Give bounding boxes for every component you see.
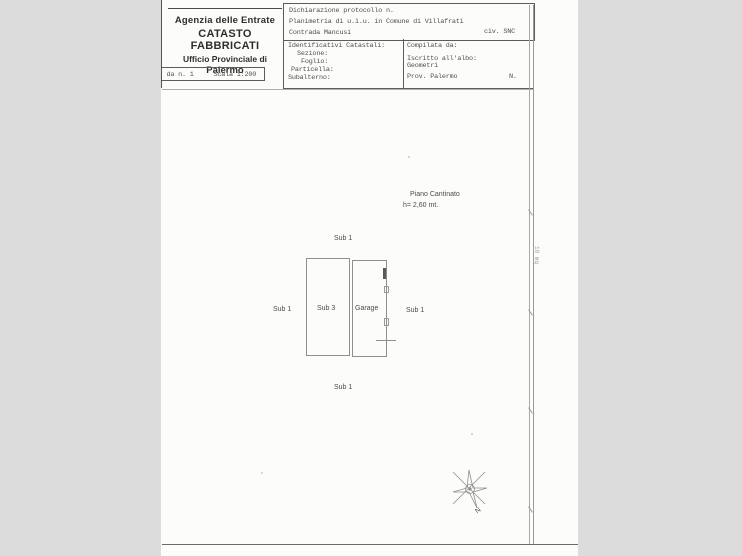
threshold-line bbox=[376, 340, 396, 341]
declaration-planimetry: Planimetria di u.i.u. in Comune di Villa… bbox=[289, 18, 464, 26]
agency-office-line: Ufficio Provinciale di bbox=[168, 54, 282, 64]
compass-rose-icon: N bbox=[449, 468, 493, 518]
compiler-register2: Geometri bbox=[407, 62, 438, 70]
page-bottom-rule bbox=[162, 544, 578, 545]
compiler-box: Compilata da: Iscritto all'albo: Geometr… bbox=[402, 39, 534, 89]
declaration-address: Contrada Mancusi bbox=[289, 29, 351, 37]
declaration-protocol: Dichiarazione protocollo n. bbox=[289, 7, 394, 15]
scan-speck bbox=[261, 472, 263, 474]
agency-header: Agenzia delle Entrate CATASTO FABBRICATI… bbox=[168, 8, 282, 76]
scan-speck bbox=[408, 156, 410, 158]
agency-cadastre-title: CATASTO FABBRICATI bbox=[168, 28, 282, 52]
header-bottom-rule bbox=[162, 89, 534, 90]
surround-label-left: Sub 1 bbox=[273, 306, 291, 313]
agency-name: Agenzia delle Entrate bbox=[168, 15, 282, 26]
floor-title: Piano Cantinato bbox=[410, 191, 460, 198]
field-foglio: Foglio: bbox=[301, 58, 328, 66]
field-subalterno: Subalterno: bbox=[288, 74, 331, 82]
compiler-province: Prov. Palermo bbox=[407, 73, 457, 81]
compass-north-label: N bbox=[474, 507, 482, 516]
surround-label-top: Sub 1 bbox=[334, 235, 352, 242]
compiler-number-label: N. bbox=[509, 73, 517, 81]
scanned-planimetry-page: Agenzia delle Entrate CATASTO FABBRICATI… bbox=[161, 0, 578, 556]
room-label-sub3: Sub 3 bbox=[317, 305, 335, 312]
room-label-garage: Garage bbox=[355, 305, 378, 312]
sheet-fold-line bbox=[529, 5, 534, 545]
fold-measure-note: 10 mq bbox=[533, 246, 540, 264]
declaration-box: Dichiarazione protocollo n. Planimetria … bbox=[283, 3, 535, 41]
field-particella: Particella: bbox=[291, 66, 334, 74]
wall-opening-mark bbox=[384, 286, 389, 293]
floor-height: h= 2,60 mt. bbox=[403, 202, 438, 209]
surround-label-right: Sub 1 bbox=[406, 307, 424, 314]
garage-door-mark bbox=[383, 268, 386, 279]
wall-opening-mark bbox=[384, 318, 389, 326]
compiler-title: Compilata da: bbox=[407, 42, 457, 50]
declaration-civ: civ. SNC bbox=[484, 28, 515, 36]
scale-label: Scala 1:200 bbox=[214, 71, 257, 79]
identifiers-box: Identificativi Catastali: Sezione: Fogli… bbox=[283, 39, 404, 89]
identifiers-title: Identificativi Catastali: bbox=[288, 42, 385, 50]
sheet-number-label: da n. 1 bbox=[167, 71, 194, 79]
scan-speck bbox=[471, 433, 473, 435]
sheet-scale-box: da n. 1 Scala 1:200 bbox=[162, 67, 265, 81]
field-sezione: Sezione: bbox=[297, 50, 328, 58]
surround-label-bottom: Sub 1 bbox=[334, 384, 352, 391]
